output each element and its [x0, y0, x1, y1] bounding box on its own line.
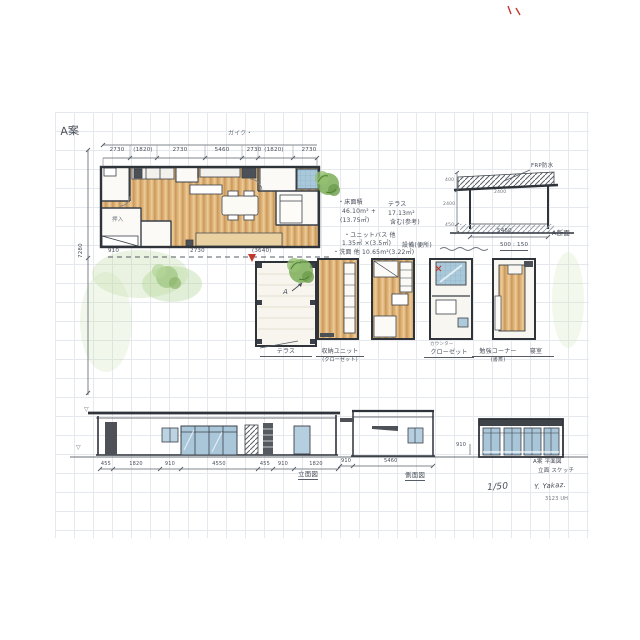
dim-value: 1820	[307, 462, 325, 467]
scanned-drawing-sheet: A案 ガイク・ 2730 (1820) 2730 5460 2730 (1820…	[0, 0, 640, 640]
dim-value: 455	[97, 462, 115, 467]
area-note: ・洗面 他 10.65m²(3.22㎡)	[333, 250, 414, 256]
section-drawing	[440, 170, 574, 251]
area-note: テラス	[388, 202, 406, 208]
elevation-label-side: 側面図	[405, 472, 425, 481]
bath-tiles	[297, 169, 318, 189]
section-cut-marker	[248, 254, 256, 262]
dim-value: 450	[445, 224, 454, 229]
detail-label-terrace: テラス	[260, 349, 312, 357]
detail-sublabel: (書斎)	[472, 358, 524, 363]
area-note: ・床面積	[338, 200, 363, 206]
area-note: 1.35㎡ ×(3.5㎡)	[342, 241, 391, 247]
detail-sublabel: カウンター	[430, 343, 454, 348]
detail-plan-bedroom	[493, 259, 535, 339]
area-note: 17.13m²	[388, 211, 415, 217]
titleblock-line1: A案 平面図	[533, 460, 562, 466]
elevation-label-south: 立面図	[298, 471, 318, 480]
dim-value: (1820)	[131, 148, 155, 154]
detail-sublabel: (クローゼット)	[316, 358, 364, 363]
dim-value: 5460	[497, 229, 512, 235]
illegible-memo-scribble	[440, 248, 488, 251]
dim-value: 1820	[127, 462, 145, 467]
dining-table	[222, 196, 258, 215]
level-mark: ▽	[76, 445, 81, 451]
dim-value: 910	[161, 462, 179, 467]
main-floor-plan	[101, 167, 319, 247]
section-label: A断面	[552, 230, 570, 237]
dim-band-title: ガイク・	[228, 131, 253, 137]
room-label: 押入	[112, 218, 123, 224]
area-note: ・ユニットバス 他	[344, 233, 396, 239]
dim-value: 455	[256, 462, 274, 467]
drawing-code: 3123 UH	[545, 497, 568, 502]
dim-value: 910	[274, 462, 292, 467]
detail-plan-storage	[318, 259, 358, 339]
dim-value: 2730	[168, 148, 192, 154]
dim-value: 910	[108, 249, 119, 255]
dim-value: 910	[341, 459, 351, 464]
detail-label-bedroom: 寝室	[518, 349, 554, 357]
dim-value: 5460	[384, 459, 398, 464]
detail-plan-closet	[372, 259, 414, 339]
plan-title: A案	[60, 125, 80, 138]
detail-label-closet: クローゼット	[424, 350, 474, 358]
dim-value: (3640)	[252, 249, 272, 255]
dim-value: 2730	[297, 148, 321, 154]
dim-value: 2400	[443, 203, 455, 208]
level-mark: ▽	[84, 407, 89, 413]
scale-note: 1/50	[487, 483, 509, 494]
roof-note: FRP防水	[531, 164, 553, 170]
section-marker-a: A	[283, 289, 288, 296]
area-note: 46.10m² +	[342, 209, 376, 215]
section-memo: 500 : 150	[500, 243, 528, 251]
dim-value: 5460	[210, 148, 234, 154]
area-note: 含む(参考)	[390, 220, 420, 226]
red-stamp-marks	[508, 6, 520, 15]
drawing-linework	[0, 0, 640, 640]
dim-value-vertical: 7280	[79, 243, 85, 258]
inner-deck-strip	[196, 233, 282, 246]
dim-value: 4550	[210, 462, 228, 467]
front-elevation	[470, 419, 563, 457]
titleblock-line2: 立面 スケッチ	[538, 469, 574, 475]
dim-value: 400	[445, 179, 454, 184]
dim-value: 2400	[494, 191, 506, 196]
detail-plan-bath	[430, 259, 472, 339]
dim-value: 2730	[105, 148, 129, 154]
area-note: (13.75㎡)	[340, 218, 369, 224]
dim-value: 2730	[190, 249, 205, 255]
dim-value: 910	[456, 443, 466, 448]
dim-value: (1820)	[262, 148, 286, 154]
bed	[280, 195, 302, 223]
